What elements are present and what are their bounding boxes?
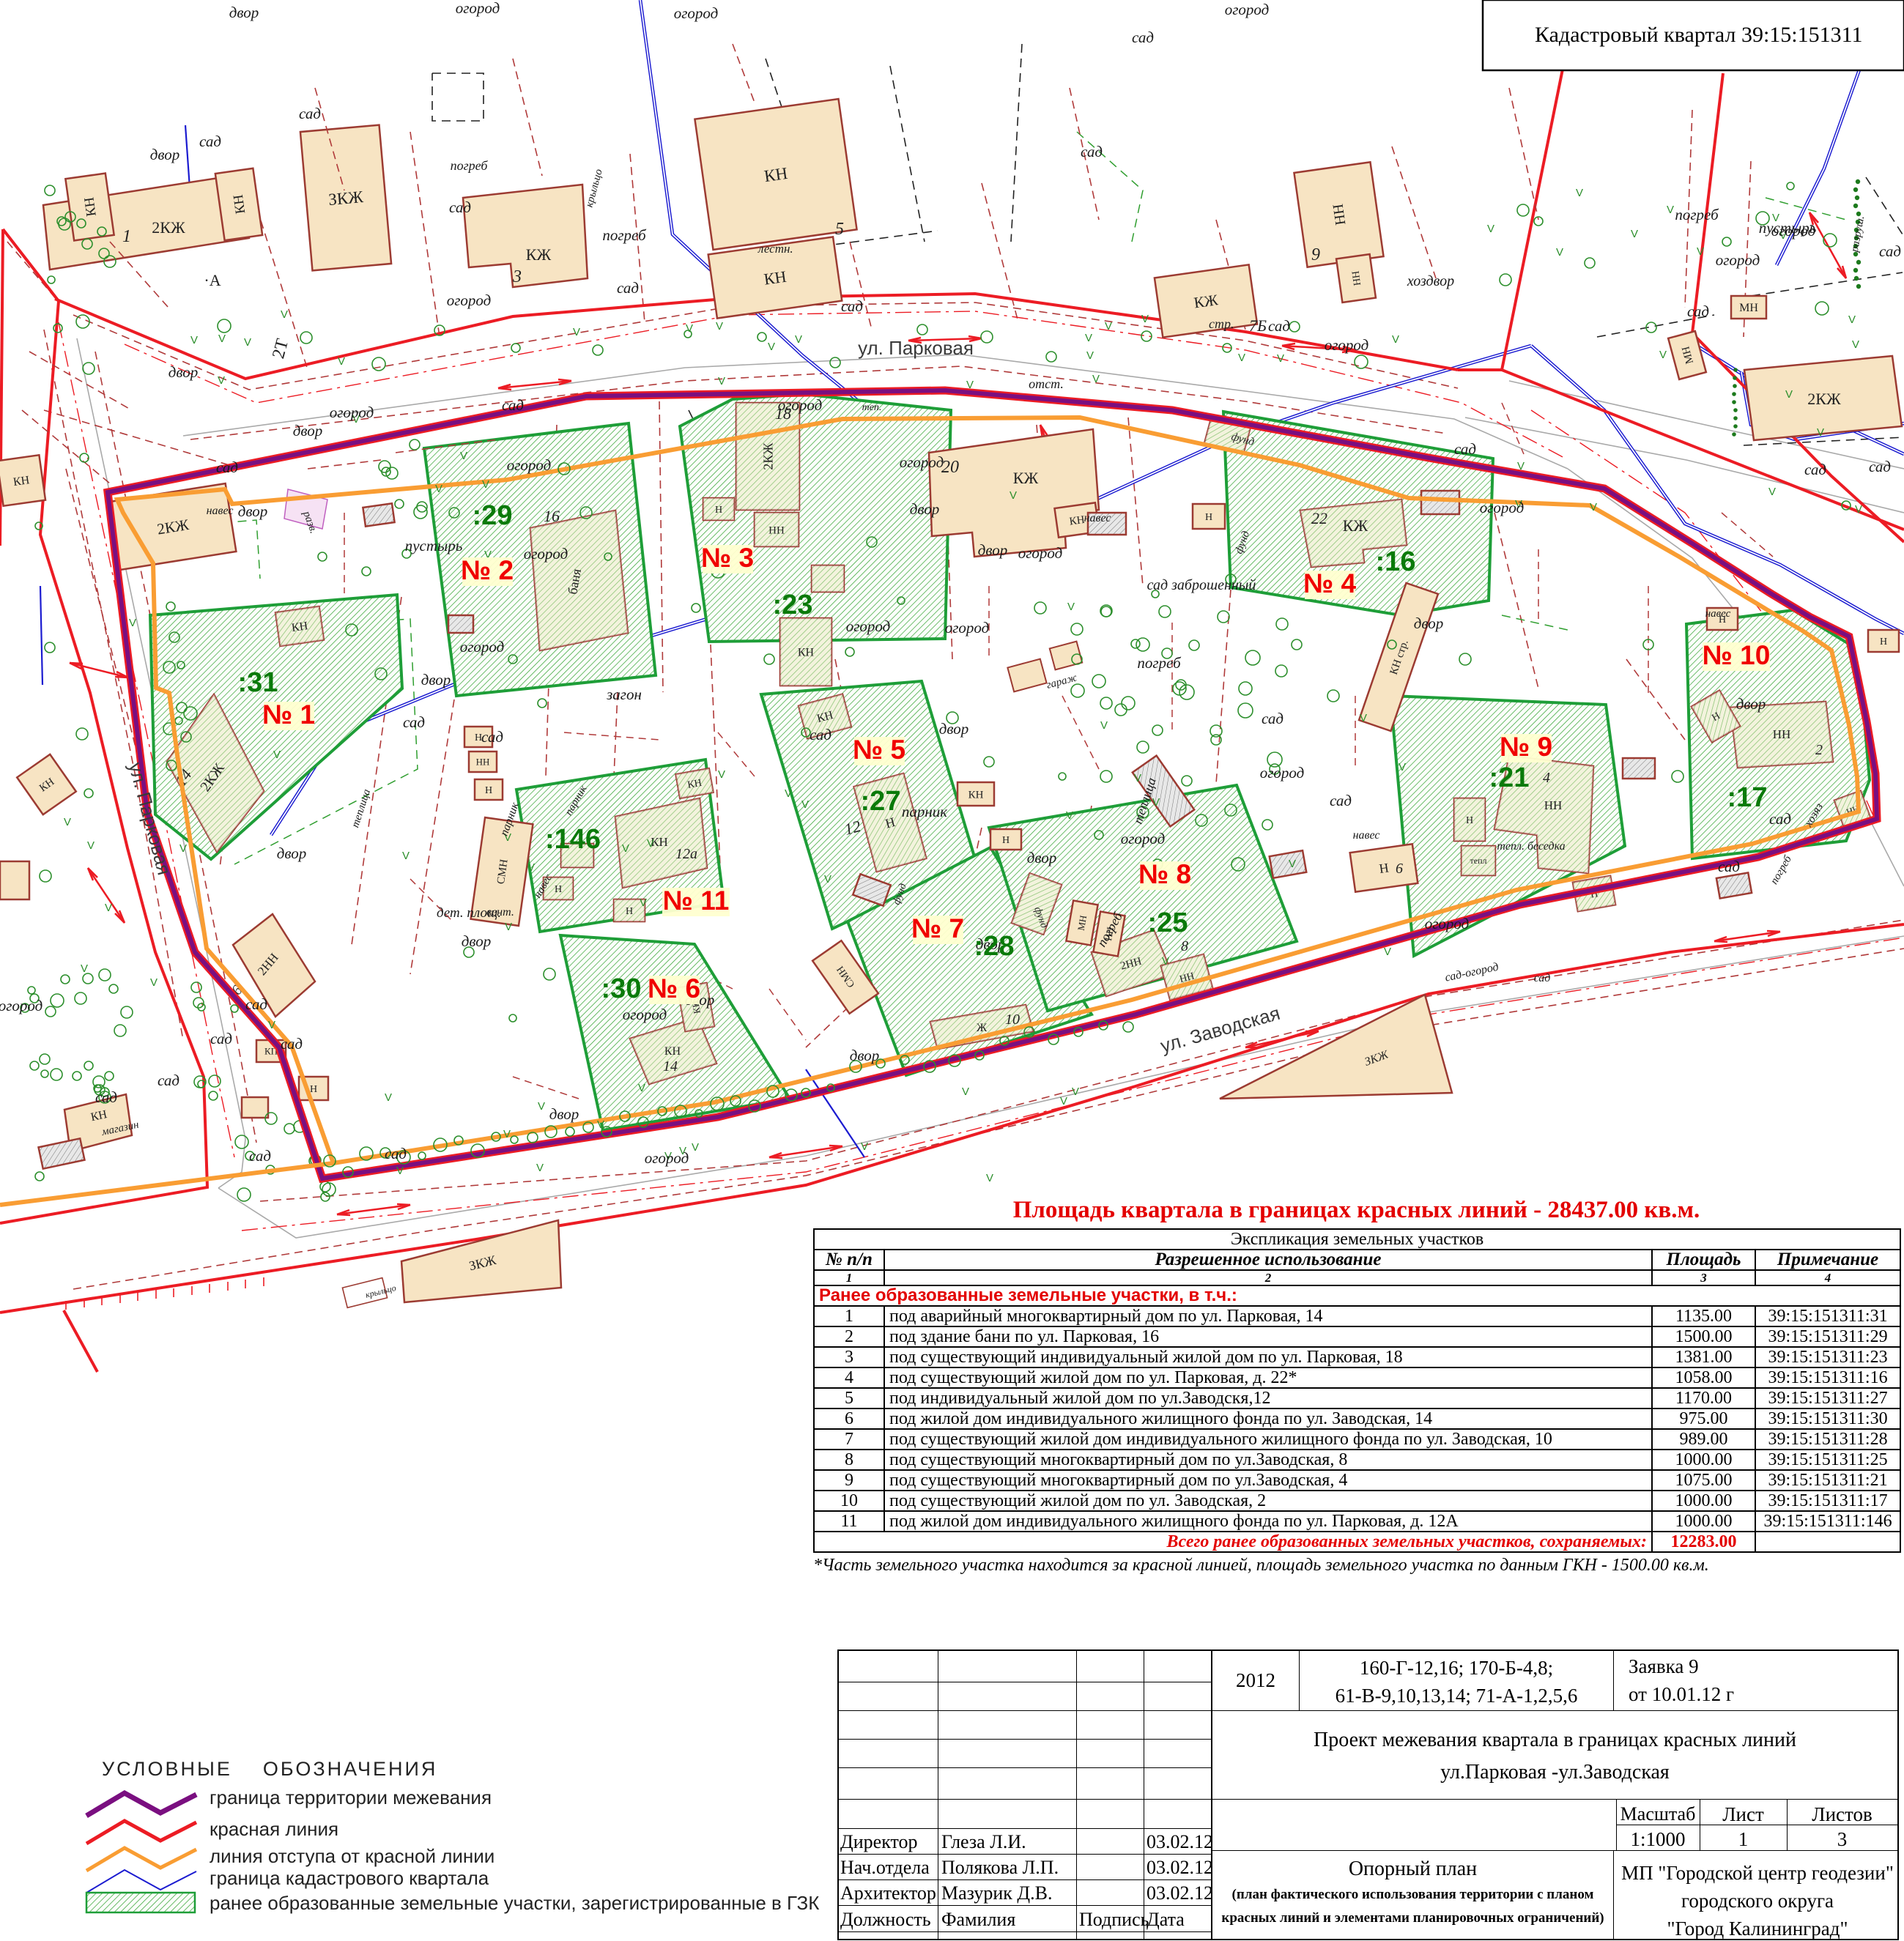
svg-text:КН: КН [763,164,789,185]
svg-text:Н: Н [626,906,633,917]
svg-text:двор: двор [229,4,259,21]
svg-text:Кадастровый квартал 39:15:151: Кадастровый квартал 39:15:151311 [1535,23,1863,47]
svg-text:КН: КН [1069,514,1086,528]
svg-text:V: V [1289,858,1296,870]
svg-text:теп.: теп. [862,402,882,413]
svg-text:V: V [1162,955,1169,968]
svg-text:сад: сад [1081,143,1103,160]
svg-text:V: V [1590,501,1597,513]
svg-text:V: V [1085,332,1092,344]
svg-text:сад: сад [1718,858,1740,875]
svg-text::31: :31 [238,667,278,698]
svg-text:огород: огород [1225,1,1270,18]
svg-text:2Т: 2Т [269,337,292,361]
svg-text:V: V [573,326,580,338]
svg-text:граница кадастрового квартала: граница кадастрового квартала [210,1867,489,1889]
svg-text:3: 3 [512,267,522,286]
svg-text:огород: огород [1018,544,1063,562]
svg-text:V: V [503,1128,511,1140]
svg-text:отст.: отст. [1029,376,1064,391]
svg-text:огород: огород [674,4,719,22]
svg-text:V: V [87,839,95,852]
svg-text:V: V [622,842,629,855]
svg-text:двор: двор [150,146,179,163]
svg-text:ул. Заводская: ул. Заводская [1158,1002,1283,1057]
svg-text:КЖ: КЖ [1013,469,1039,487]
svg-text::21: :21 [1489,762,1530,793]
svg-text:огород: огород [645,1149,689,1167]
svg-text:пустырь: пустырь [1759,219,1817,237]
svg-text:V: V [686,322,693,335]
svg-text:погреб: погреб [602,226,647,244]
svg-text:двор: двор [850,1047,879,1064]
svg-text:сад: сад [249,1147,271,1165]
svg-text:двор: двор [238,502,267,520]
svg-text:V: V [1086,349,1094,362]
svg-text:двор: двор [293,422,322,439]
svg-text:огород: огород [1716,251,1760,269]
svg-text:10: 10 [1005,1012,1020,1028]
svg-text:V: V [1785,388,1793,401]
svg-text:сад: сад [403,713,425,731]
svg-text:сад: сад [841,297,863,315]
svg-text:V: V [268,1019,275,1031]
svg-text:7Б: 7Б [1249,316,1267,335]
svg-text::16: :16 [1376,546,1416,577]
svg-text:V: V [1487,223,1494,235]
svg-text:крыльцо: крыльцо [584,168,605,209]
svg-text:погреб: погреб [1768,853,1794,886]
svg-text:V: V [150,976,158,989]
svg-text:сад: сад [1132,29,1154,46]
svg-text:V: V [1667,204,1674,216]
svg-text:навес: навес [1353,829,1380,842]
svg-text:V: V [402,850,410,862]
svg-text:V: V [768,341,775,353]
svg-text:V: V [640,897,647,909]
svg-text:V: V [1576,187,1583,199]
svg-text:погреб: погреб [451,158,489,173]
svg-text:хоздвор: хоздвор [1407,273,1454,289]
svg-text:№ 8: № 8 [1138,859,1191,889]
svg-text:2КЖ: 2КЖ [1807,390,1841,408]
svg-text::25: :25 [1148,908,1188,938]
svg-text:22: 22 [1311,509,1327,527]
svg-text:V: V [538,1100,545,1113]
svg-text:двор: двор [549,1105,579,1123]
svg-text:огород: огород [1325,336,1369,354]
svg-text:V: V [482,478,489,491]
svg-text:V: V [1399,761,1406,773]
svg-text:V: V [1277,352,1284,365]
svg-text:V: V [1152,796,1160,809]
svg-text:КН: КН [81,196,100,218]
svg-text:V: V [1010,489,1017,502]
svg-text:сад: сад [1879,242,1901,260]
svg-text:V: V [1855,503,1862,516]
svg-text:V: V [1697,245,1704,258]
svg-text::146: :146 [545,824,601,855]
svg-text:двор: двор [277,845,306,862]
svg-text:№ 1: № 1 [262,699,315,730]
svg-text:сад: сад [245,995,267,1013]
svg-text:V: V [1817,426,1824,439]
svg-text:сад: сад [502,396,524,414]
svg-text:V: V [218,374,225,387]
svg-text:вент.: вент. [486,906,514,918]
svg-text:№ 6: № 6 [648,973,700,1003]
svg-text:линия отступа от красной линии: линия отступа от красной линии [210,1845,494,1867]
svg-text:V: V [1556,246,1563,259]
svg-text:V: V [1360,712,1367,724]
svg-text:V: V [986,1172,993,1184]
svg-text:сад: сад [1262,710,1283,727]
svg-text:V: V [218,333,226,345]
svg-text:огород: огород [0,997,42,1014]
svg-text:двор: двор [462,932,491,950]
svg-text:сад: сад [449,198,471,216]
svg-text:двор: двор [168,363,198,381]
svg-text:ул. Парковая: ул. Парковая [858,337,974,359]
svg-text:V: V [785,787,792,800]
svg-text:огород: огород [507,456,552,474]
svg-text:Н: Н [555,884,562,895]
svg-text:двор: двор [978,541,1007,559]
svg-text:V: V [716,320,723,333]
svg-text:V: V [527,861,535,874]
svg-text:огород: огород [778,396,823,414]
svg-text:V: V [281,308,288,321]
svg-text:сад: сад [281,1035,303,1053]
svg-text:V: V [338,355,345,368]
svg-text:огород: огород [447,292,492,309]
svg-text:Н: Н [715,505,722,516]
svg-text:16: 16 [544,507,560,525]
svg-text:сад: сад [385,1145,407,1162]
svg-text:ранее образованные земельные у: ранее образованные земельные участки, за… [210,1892,819,1914]
svg-text:сад: сад [1769,810,1791,828]
svg-text:УСЛОВНЫЕ ОБОЗНАЧЕНИЯ: УСЛОВНЫЕ ОБОЗНАЧЕНИЯ [102,1758,437,1780]
svg-text:№ 3: № 3 [701,543,754,573]
svg-text:V: V [244,336,251,349]
svg-text:V: V [1066,809,1073,822]
svg-text:навес: навес [207,505,234,517]
svg-text::27: :27 [861,786,901,817]
svg-text:КЖ: КЖ [1343,516,1368,535]
svg-text:№ 4: № 4 [1303,568,1357,598]
svg-text:КЖ: КЖ [1193,291,1219,311]
svg-text::23: :23 [773,590,813,620]
svg-text:4: 4 [1543,770,1550,786]
svg-text:двор: двор [910,500,939,518]
svg-text:V: V [505,921,512,933]
svg-text:Н: Н [1466,815,1473,826]
svg-text:V: V [718,375,725,387]
svg-text:V: V [179,842,187,855]
svg-text:V: V [1238,352,1245,364]
svg-text:ЗКЖ: ЗКЖ [327,188,364,209]
svg-text:Ж: Ж [977,1022,988,1034]
svg-text:V: V [692,1141,699,1154]
svg-text:огород: огород [846,617,891,635]
svg-text:Н: Н [1378,860,1390,876]
svg-text:огород: огород [1425,915,1470,932]
svg-text:2: 2 [1815,742,1823,758]
svg-text:огород: огород [623,1006,667,1023]
svg-text:красная линия: красная линия [210,1818,338,1840]
svg-text:парник: парник [902,803,947,820]
svg-text:V: V [1517,460,1525,472]
svg-text:2КЖ: 2КЖ [152,218,185,237]
svg-text:НН: НН [476,757,490,768]
svg-text:огород: огород [1480,499,1525,516]
svg-text:№ 11: № 11 [663,886,730,916]
svg-text:V: V [190,334,198,346]
svg-text:V: V [105,902,112,914]
svg-text:огород: огород [330,404,374,421]
svg-text:КЖ: КЖ [526,245,552,264]
svg-text:V: V [1631,228,1638,240]
svg-text:сад: сад [210,1030,232,1047]
svg-text:сад заброшенный: сад заброшенный [1147,577,1256,593]
svg-text:Н: Н [1205,512,1212,523]
svg-text:V: V [273,749,281,761]
svg-text:V: V [1659,349,1667,361]
svg-text:сад: сад [1454,440,1476,458]
svg-text:КН: КН [231,193,249,215]
svg-text:сад-огород: сад-огород [1444,961,1500,984]
svg-text::30: :30 [601,973,642,1004]
svg-text:V: V [1092,373,1100,385]
svg-text:КН: КН [968,789,984,801]
svg-text:V: V [396,1165,404,1177]
svg-text:двор: двор [421,671,451,689]
svg-text:V: V [1392,333,1399,346]
svg-text:погреб: погреб [1675,206,1719,223]
svg-text:КН: КН [12,474,31,489]
svg-text:·А: ·А [204,271,221,289]
svg-text:МН: МН [1739,302,1758,314]
svg-text:V: V [129,617,136,629]
svg-text:тепл. беседка: тепл. беседка [1497,840,1565,853]
svg-text:сад: сад [216,459,238,476]
svg-text::17: :17 [1727,782,1768,813]
svg-text:20: 20 [941,458,959,477]
svg-text:сад: сад [1804,461,1826,478]
svg-text:сад: сад [1534,972,1551,984]
svg-text:КН: КН [763,267,788,289]
svg-text:V: V [81,962,88,975]
svg-text:навес: навес [1705,608,1731,620]
svg-text:V: V [638,1082,645,1094]
svg-text:огород: огород [524,545,568,563]
svg-text:V: V [435,483,442,495]
svg-text:V: V [966,379,974,391]
svg-text:V: V [1141,313,1149,325]
svg-text:V: V [1134,772,1141,784]
svg-text:№ 5: № 5 [853,735,905,765]
svg-text:двор: двор [1414,615,1443,632]
svg-text:сад: сад [481,728,503,746]
svg-text:двор: двор [1027,849,1056,866]
svg-text:V: V [597,1118,604,1131]
svg-text:огород: огород [456,0,500,17]
svg-text:6: 6 [1396,861,1403,877]
svg-text:НН: НН [1351,270,1364,286]
svg-text:V: V [801,798,809,811]
svg-text:КН: КН [798,647,815,659]
svg-text:V: V [962,1085,969,1098]
svg-text:двор: двор [939,720,968,738]
svg-text:V: V [1384,946,1391,958]
svg-text:сад: сад [199,133,221,150]
svg-text:сад: сад [1268,317,1290,335]
svg-text:сад: сад [1687,303,1709,320]
svg-text:стр.: стр. [1209,316,1234,331]
svg-text:9: 9 [1311,245,1320,264]
svg-text:1: 1 [122,227,131,246]
svg-text::28: :28 [974,931,1015,962]
svg-text:2КЖ: 2КЖ [760,442,775,470]
svg-text:сад: сад [158,1072,179,1089]
svg-text::29: :29 [473,500,513,531]
svg-text:V: V [647,837,654,850]
svg-text:НН: НН [1773,727,1791,741]
svg-text:№ 10: № 10 [1703,640,1771,670]
svg-text:КН: КН [291,620,309,634]
svg-text:V: V [1852,338,1859,351]
svg-text:разруш.: разруш. [1849,215,1867,253]
svg-text:V: V [64,816,71,828]
svg-text:V: V [1067,601,1075,613]
svg-text:огород: огород [945,619,990,637]
svg-text:сад: сад [617,279,639,297]
svg-text:НН: НН [1330,203,1349,226]
svg-text:V: V [1848,313,1856,326]
svg-text:загон: загон [606,686,642,703]
svg-text:огород: огород [460,638,505,656]
svg-text:Н: Н [310,1084,317,1095]
svg-text:лестн.: лестн. [757,242,793,256]
svg-text:V: V [1100,719,1108,732]
svg-text:V: V [718,768,725,781]
svg-text:двор: двор [1736,695,1766,713]
svg-text:5: 5 [835,220,844,239]
svg-text:гараж: гараж [1045,672,1078,691]
svg-text:тепл: тепл [1470,856,1487,866]
svg-text:V: V [861,1140,868,1153]
svg-text:НН: НН [1544,798,1563,812]
svg-text:№ 9: № 9 [1500,732,1552,762]
svg-text:сад: сад [95,1088,117,1106]
svg-text:КН: КН [664,1045,681,1058]
svg-text:V: V [1072,1085,1079,1098]
svg-text:сад: сад [1869,458,1891,475]
svg-text:12а: 12а [675,846,697,862]
svg-text:V: V [824,873,831,886]
svg-text:V: V [1105,320,1112,333]
svg-text:Н: Н [485,785,492,796]
svg-text:Н: Н [1002,835,1010,846]
svg-text:V: V [385,1091,392,1104]
svg-text:Н: Н [1880,637,1887,647]
svg-text:навес: навес [1084,512,1111,524]
svg-text:огород: огород [900,453,944,471]
svg-text:V: V [1768,486,1776,498]
svg-text:сад: сад [810,726,831,743]
svg-text:14: 14 [663,1058,678,1075]
svg-text:V: V [460,450,467,462]
svg-text:граница территории межевания: граница территории межевания [210,1786,492,1808]
svg-text:погреб: погреб [1137,654,1182,672]
svg-text:V: V [1060,1095,1067,1107]
svg-text:V: V [536,1162,544,1174]
svg-text:сад: сад [299,105,321,122]
svg-text:сад: сад [1330,792,1352,809]
svg-text:V: V [795,333,802,346]
svg-text:№ 2: № 2 [461,555,514,585]
svg-text:НН: НН [768,524,785,536]
svg-text:огород: огород [1121,830,1166,847]
svg-text:№ 7: № 7 [911,913,964,943]
svg-text:пустырь: пустырь [405,537,463,554]
svg-text:огород: огород [1260,764,1305,782]
svg-text:8: 8 [1181,938,1188,954]
